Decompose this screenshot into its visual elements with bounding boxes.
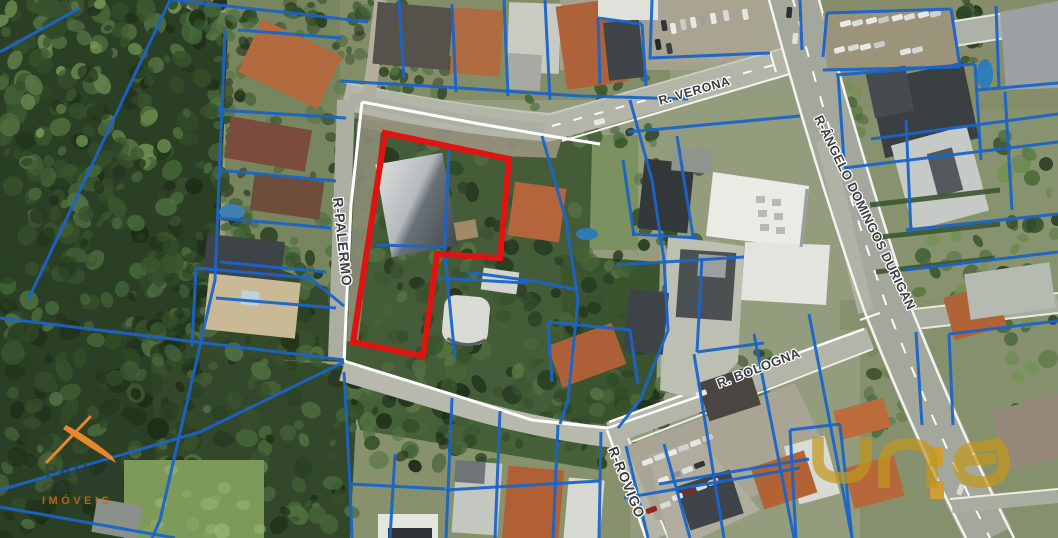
svg-text:GALVES: GALVES bbox=[43, 479, 113, 496]
svg-text:IMÓVEIS: IMÓVEIS bbox=[42, 494, 112, 507]
